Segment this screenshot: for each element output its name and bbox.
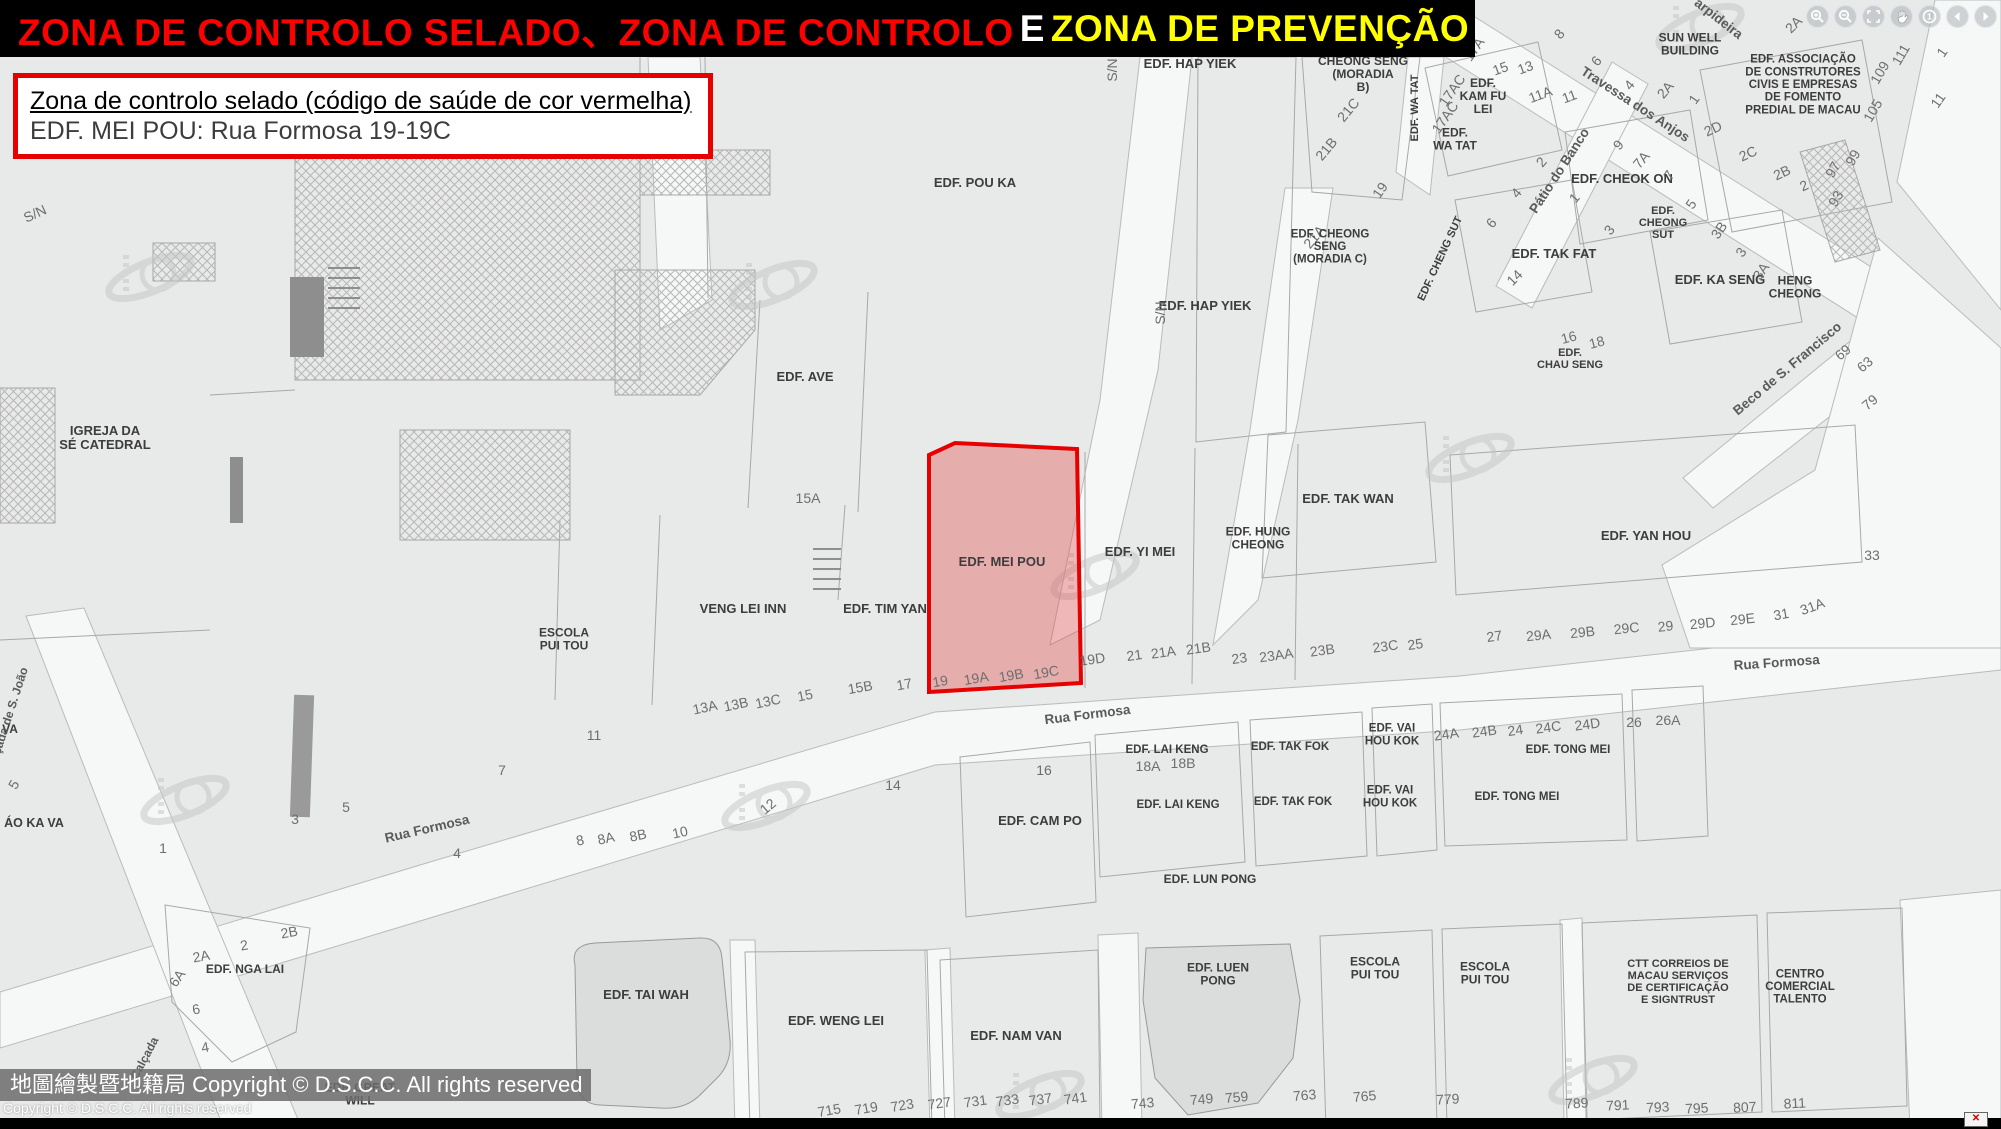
map-label: 743: [1130, 1094, 1155, 1112]
map-label: 25: [1406, 635, 1424, 653]
zoom-in-icon[interactable]: [1806, 5, 1829, 28]
map-label: 29: [1657, 617, 1674, 635]
map-label: 5: [342, 799, 350, 815]
map-label: EDF. TIM YAN: [843, 601, 927, 616]
map-label: 27: [1485, 627, 1503, 645]
map-label: EDF. HAP YIEK: [1144, 56, 1237, 71]
map-label: EDF. VAIHOU KOK: [1365, 723, 1420, 748]
map-label: EDF. LAI KENG: [1125, 744, 1208, 756]
map-label: 727: [927, 1093, 953, 1112]
banner-text-white: E: [1014, 8, 1051, 50]
map-label: EDF. TAI WAH: [603, 987, 689, 1002]
map-label: 26: [1626, 714, 1642, 730]
map-label: EDF. ASSOCIAÇÃODE CONSTRUTORESCIVIS E EM…: [1745, 53, 1861, 117]
map-label: EDF. WENG LEI: [788, 1013, 884, 1028]
map-label: 795: [1685, 1099, 1709, 1116]
map-label: 737: [1028, 1089, 1054, 1108]
map-label: ÁO KA VA: [4, 815, 64, 830]
initial-view-icon[interactable]: 1: [1918, 5, 1941, 28]
map-label: 779: [1436, 1090, 1460, 1107]
zoom-out-icon[interactable]: [1834, 5, 1857, 28]
map-label: EDF. TONG MEI: [1526, 744, 1611, 756]
map-label: 29E: [1729, 610, 1755, 629]
map-canvas[interactable]: S/NIGREJA DASÉ CATEDRALEDF. POU KAEDF. A…: [0, 0, 2001, 1129]
map-label: 33: [1864, 547, 1880, 563]
map-label: S/N: [1104, 58, 1120, 81]
map-label: 18B: [1171, 755, 1196, 771]
map-label: 807: [1733, 1098, 1757, 1115]
legend-building-address: EDF. MEI POU: Rua Formosa 19-19C: [30, 116, 696, 147]
map-label: EDF. TAK FOK: [1254, 796, 1333, 808]
previous-view-icon[interactable]: [1946, 5, 1969, 28]
map-label: 23: [1230, 649, 1248, 667]
next-view-icon[interactable]: [1974, 5, 1997, 28]
map-label: 2B: [279, 923, 299, 942]
map-label: 7: [498, 762, 506, 778]
map-label: EDF. NGA LAI: [206, 962, 284, 976]
map-label: EDF. CAM PO: [998, 813, 1082, 828]
map-label: 11: [587, 727, 602, 743]
full-extent-icon[interactable]: [1862, 5, 1885, 28]
map-label: EDF. NAM VAN: [970, 1028, 1061, 1043]
map-label: EDF. TAK WAN: [1302, 491, 1393, 506]
map-label: 791: [1606, 1096, 1630, 1113]
header-banner: ZONA DE CONTROLO SELADO、ZONA DE CONTROLO…: [0, 0, 1475, 57]
legend-zone-title: Zona de controlo selado (código de saúde…: [30, 86, 696, 116]
map-label: EDF. LUN PONG: [1164, 872, 1257, 886]
map-label: ESCOLAPUI TOU: [1350, 954, 1400, 981]
map-label: IGREJA DASÉ CATEDRAL: [59, 423, 151, 452]
map-label: EDF. AVE: [776, 369, 833, 384]
map-label: EDF. CHEOK ON: [1571, 171, 1673, 186]
copyright-bar: 地圖繪製暨地籍局 Copyright © D.S.C.C. All rights…: [0, 1069, 591, 1101]
map-label: 17: [895, 675, 913, 693]
map-label: 24: [1506, 721, 1524, 739]
map-label: SUN WELLBUILDING: [1659, 30, 1722, 57]
map-label: EDF. TAK FOK: [1251, 741, 1330, 753]
banner-text-red: ZONA DE CONTROLO SELADO、ZONA DE CONTROLO: [18, 2, 1014, 56]
map-label: EDF. VAIHOU KOK: [1363, 785, 1418, 810]
map-label: EDF. TAK FAT: [1512, 246, 1597, 261]
map-label: CTT CORREIOS DEMACAU SERVIÇOSDE CERTIFIC…: [1627, 958, 1729, 1006]
map-label: EDF. WA TAT: [1409, 74, 1421, 141]
map-label: 26A: [1656, 712, 1682, 728]
map-label: 29B: [1569, 623, 1595, 642]
map-label: 14: [885, 777, 901, 793]
map-label: S/N: [1152, 301, 1168, 324]
map-label: VENG LEI INN: [700, 601, 787, 616]
bottom-black-strip: [0, 1118, 2001, 1129]
map-toolbar: 1: [1806, 5, 1997, 28]
map-label: 811: [1783, 1094, 1806, 1111]
map-label: 4: [453, 845, 461, 861]
map-label: EDF. POU KA: [934, 175, 1017, 190]
map-label: 763: [1292, 1086, 1317, 1104]
map-label: 1: [159, 840, 167, 856]
minimized-window-icon[interactable]: ✕: [1964, 1112, 1988, 1127]
pan-hand-icon[interactable]: [1890, 5, 1913, 28]
map-label: 29D: [1689, 614, 1716, 633]
map-label: EDF. HAP YIEK: [1159, 298, 1252, 313]
map-label: EDF. TONG MEI: [1475, 791, 1560, 803]
map-label: 19: [931, 672, 949, 690]
map-label: ESCOLAPUI TOU: [1460, 959, 1510, 986]
map-label: EDF. YI MEI: [1105, 544, 1176, 559]
map-label: EDF. YAN HOU: [1601, 528, 1691, 543]
map-label: EDF. HUNGCHEONG: [1226, 524, 1291, 551]
map-label: 759: [1224, 1088, 1249, 1106]
map-label: 749: [1189, 1090, 1214, 1108]
map-label: 3: [291, 811, 299, 827]
map-label: EDF. LAI KENG: [1136, 799, 1219, 811]
legend-box: Zona de controlo selado (código de saúde…: [13, 73, 713, 159]
map-label: 15A: [796, 490, 822, 506]
map-label: 731: [963, 1091, 989, 1110]
map-label: ESCOLAPUI TOU: [539, 625, 589, 652]
map-graphics: S/NIGREJA DASÉ CATEDRALEDF. POU KAEDF. A…: [0, 0, 2001, 1129]
map-label: 18A: [1136, 758, 1162, 774]
map-viewer-screen: { "header": { "banner_segments": [ {"tex…: [0, 0, 2001, 1129]
map-label: 16: [1036, 762, 1052, 778]
svg-text:1: 1: [1927, 12, 1932, 22]
map-label: 793: [1646, 1098, 1670, 1115]
banner-text-yellow: ZONA DE PREVENÇÃO: [1051, 8, 1469, 50]
map-label: 741: [1063, 1088, 1089, 1107]
map-label: EDF. MEI POU: [959, 554, 1046, 569]
copyright-watermark-text: Copyright © D.S.C.C. All rights reserved: [3, 1100, 251, 1116]
map-label: 29A: [1525, 626, 1552, 645]
map-label: 31: [1772, 605, 1790, 623]
map-label: 765: [1352, 1087, 1377, 1105]
map-label: 789: [1565, 1094, 1589, 1111]
map-label: 29C: [1613, 619, 1640, 638]
map-label: 21: [1125, 646, 1143, 664]
map-label: 733: [995, 1090, 1021, 1109]
